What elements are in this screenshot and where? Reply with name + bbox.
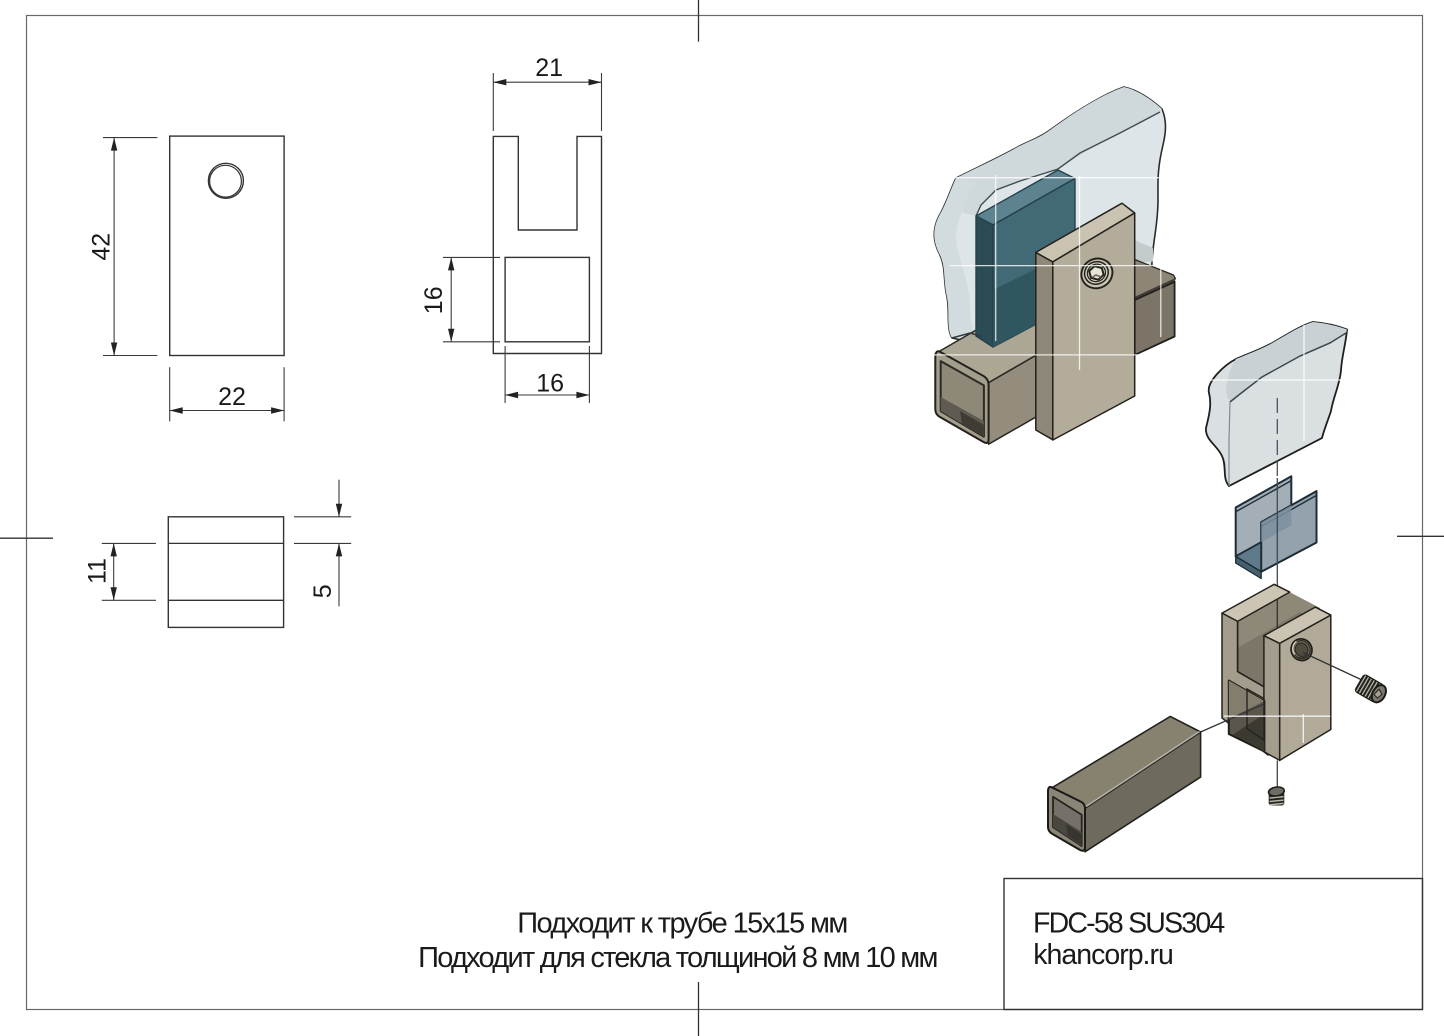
svg-text:21: 21 [535, 54, 563, 82]
svg-text:16: 16 [420, 286, 448, 314]
svg-text:11: 11 [83, 558, 111, 584]
svg-text:16: 16 [536, 369, 564, 397]
svg-text:5: 5 [309, 584, 337, 598]
svg-text:khancorp.ru: khancorp.ru [1033, 939, 1173, 971]
svg-text:22: 22 [218, 383, 246, 411]
svg-text:42: 42 [88, 233, 116, 261]
svg-text:FDC-58 SUS304: FDC-58 SUS304 [1033, 907, 1225, 939]
svg-text:Подходит к трубе 15х15 мм: Подходит к трубе 15х15 мм [517, 907, 846, 939]
svg-text:Подходит для стекла толщиной 8: Подходит для стекла толщиной 8 мм 10 мм [418, 942, 937, 974]
